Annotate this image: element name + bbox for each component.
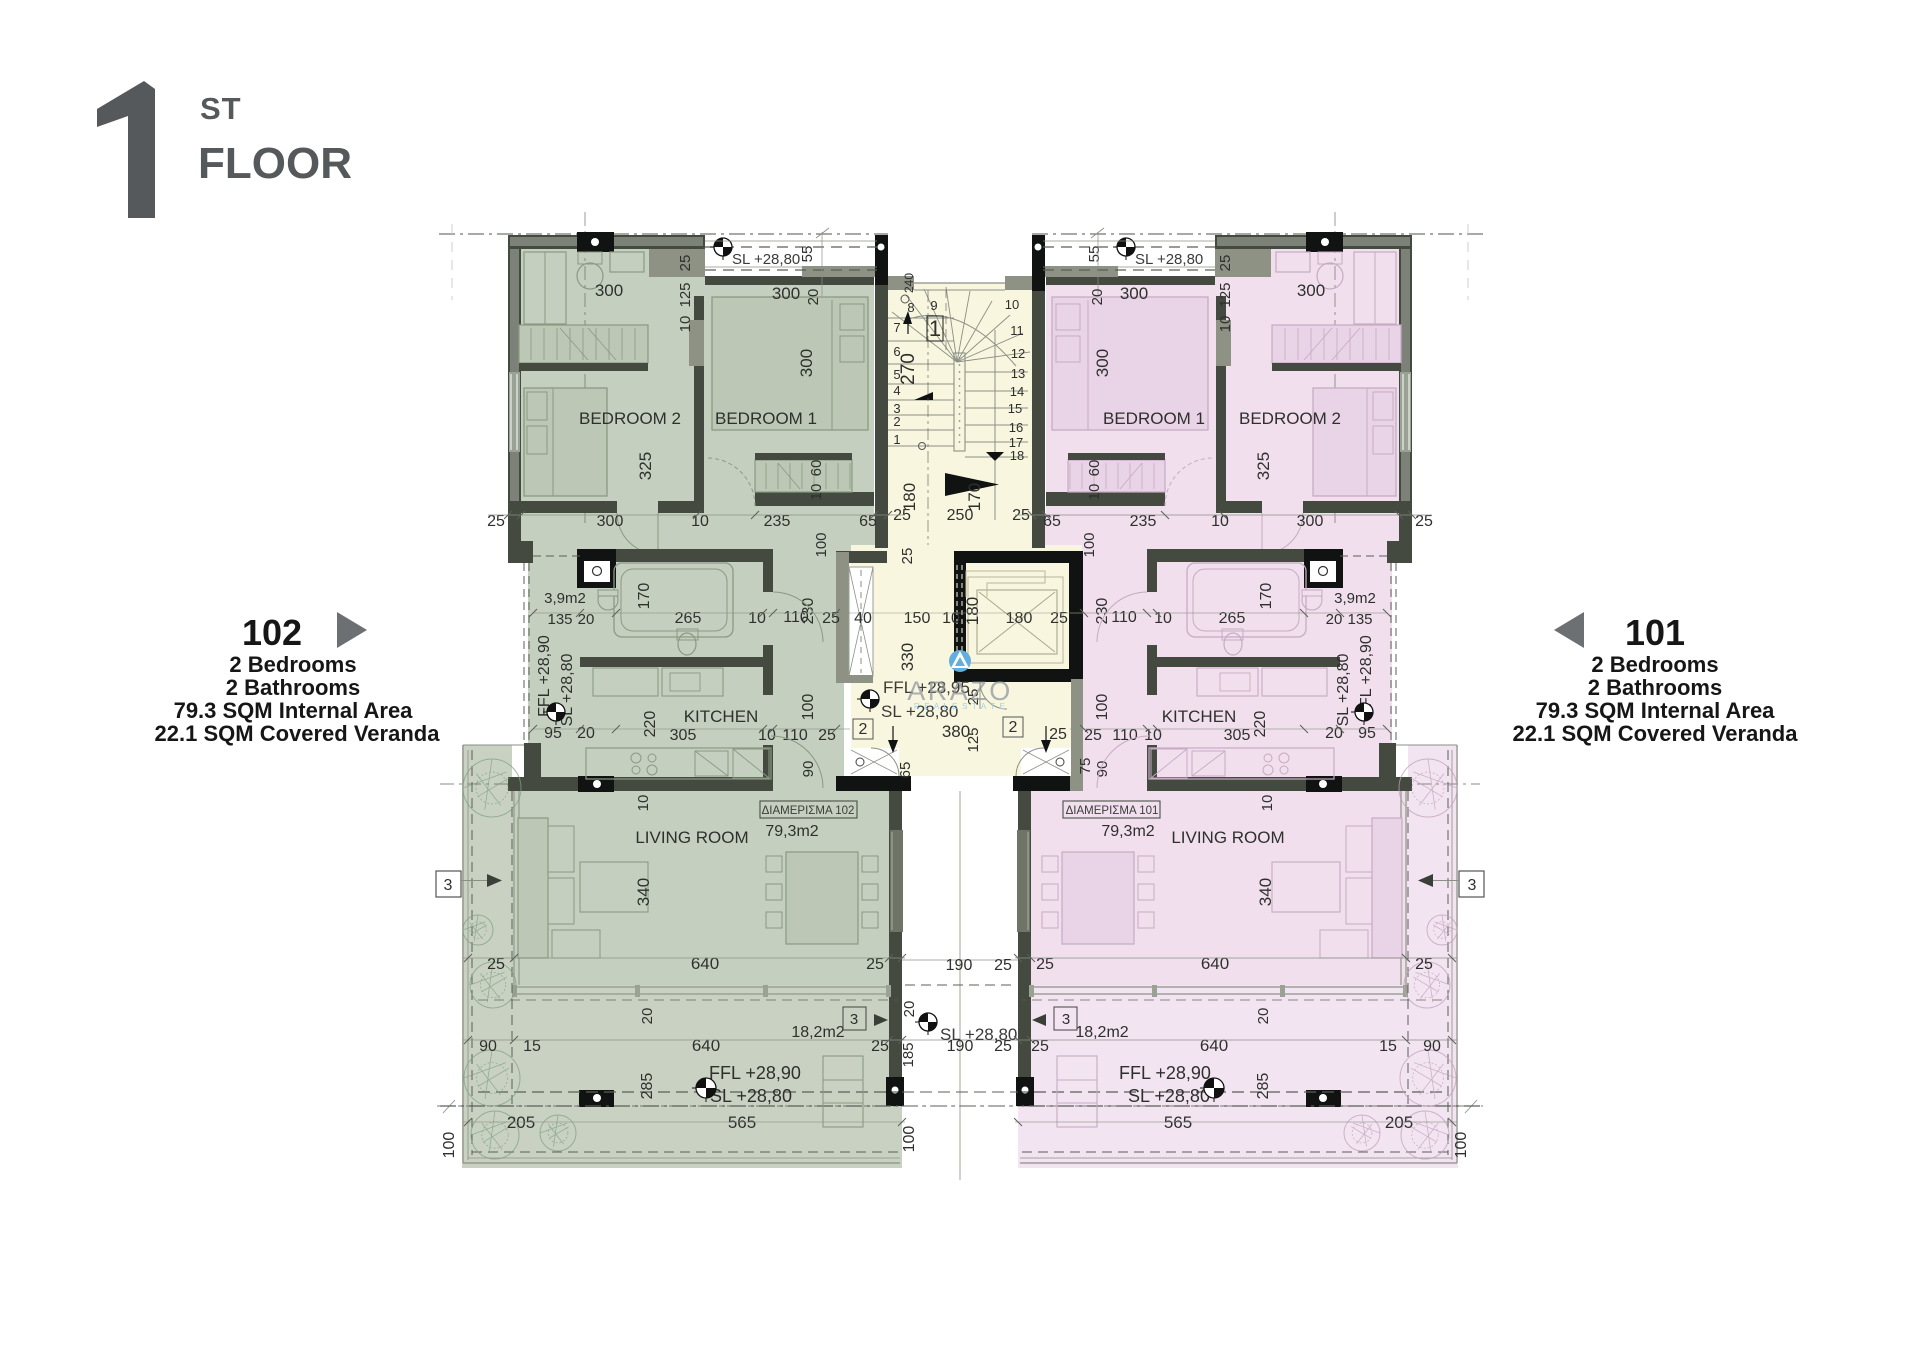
svg-text:18: 18: [1010, 448, 1024, 463]
svg-text:BEDROOM 1: BEDROOM 1: [1103, 409, 1205, 428]
svg-text:ΔΙΑΜΕΡΙΣΜΑ 102: ΔΙΑΜΕΡΙΣΜΑ 102: [762, 805, 855, 817]
svg-text:10: 10: [1217, 316, 1234, 333]
svg-text:95: 95: [1358, 725, 1376, 742]
svg-text:565: 565: [728, 1113, 756, 1132]
svg-text:305: 305: [670, 727, 697, 744]
svg-text:100: 100: [441, 1132, 458, 1159]
svg-text:65: 65: [859, 513, 877, 530]
svg-text:125: 125: [965, 727, 982, 752]
svg-text:SL +28,80: SL +28,80: [1128, 1086, 1210, 1106]
svg-text:170: 170: [965, 483, 984, 511]
svg-text:ΔΙΑΜΕΡΙΣΜΑ 101: ΔΙΑΜΕΡΙΣΜΑ 101: [1066, 805, 1159, 817]
svg-text:230: 230: [1094, 598, 1111, 625]
svg-text:18,2m2: 18,2m2: [791, 1024, 844, 1041]
svg-text:10: 10: [1005, 297, 1019, 312]
svg-text:300: 300: [772, 284, 800, 303]
svg-text:25: 25: [871, 1038, 889, 1055]
svg-text:79,3m2: 79,3m2: [1101, 823, 1154, 840]
svg-text:25: 25: [1084, 727, 1102, 744]
svg-text:25: 25: [487, 956, 505, 973]
svg-text:270: 270: [898, 353, 919, 385]
svg-text:265: 265: [675, 610, 702, 627]
svg-text:18,2m2: 18,2m2: [1075, 1024, 1128, 1041]
svg-text:25: 25: [1217, 255, 1234, 272]
svg-text:640: 640: [1200, 1036, 1228, 1055]
svg-text:25: 25: [818, 727, 836, 744]
svg-text:220: 220: [1252, 711, 1269, 738]
svg-text:10: 10: [758, 727, 776, 744]
svg-text:55: 55: [799, 246, 816, 263]
svg-text:2: 2: [859, 721, 868, 738]
svg-text:90: 90: [1094, 761, 1111, 778]
svg-text:22.1 SQM Covered Veranda: 22.1 SQM Covered Veranda: [1513, 721, 1799, 746]
svg-text:100: 100: [800, 694, 817, 721]
svg-text:95: 95: [544, 725, 562, 742]
svg-text:3: 3: [850, 1011, 858, 1028]
svg-text:22.1 SQM Covered Veranda: 22.1 SQM Covered Veranda: [155, 721, 441, 746]
svg-text:10: 10: [691, 513, 709, 530]
svg-text:25: 25: [1012, 507, 1030, 524]
svg-text:170: 170: [636, 583, 653, 610]
svg-text:170: 170: [1258, 583, 1275, 610]
svg-text:R E A L E S T A T E: R E A L E S T A T E: [914, 702, 1006, 711]
svg-text:135: 135: [547, 611, 572, 628]
svg-text:285: 285: [639, 1073, 656, 1100]
svg-text:LIVING ROOM: LIVING ROOM: [1171, 828, 1284, 847]
svg-text:180: 180: [963, 597, 982, 625]
svg-text:235: 235: [1130, 513, 1157, 530]
svg-text:340: 340: [634, 878, 653, 906]
svg-text:100: 100: [1081, 532, 1098, 557]
svg-text:75: 75: [1077, 758, 1094, 775]
svg-text:25: 25: [1415, 956, 1433, 973]
svg-text:565: 565: [1164, 1113, 1192, 1132]
svg-text:20: 20: [805, 289, 822, 306]
svg-text:1: 1: [929, 316, 941, 341]
svg-text:20: 20: [901, 1001, 918, 1018]
svg-text:25: 25: [1050, 610, 1068, 627]
svg-text:3: 3: [1062, 1011, 1070, 1028]
svg-text:10: 10: [677, 316, 694, 333]
svg-text:90: 90: [479, 1038, 497, 1055]
svg-text:325: 325: [1254, 452, 1273, 480]
svg-text:11: 11: [1010, 323, 1024, 338]
svg-text:12: 12: [1011, 346, 1025, 361]
svg-text:25: 25: [487, 513, 505, 530]
svg-text:25: 25: [994, 957, 1012, 974]
svg-text:135: 135: [1347, 611, 1372, 628]
svg-text:14: 14: [1010, 384, 1024, 399]
svg-text:205: 205: [1385, 1113, 1413, 1132]
svg-text:25: 25: [1415, 513, 1433, 530]
svg-text:325: 325: [636, 452, 655, 480]
svg-text:SL +28,80: SL +28,80: [940, 1025, 1017, 1044]
svg-text:20: 20: [1325, 725, 1343, 742]
svg-text:20: 20: [1255, 1008, 1272, 1025]
svg-text:101: 101: [1625, 612, 1685, 653]
svg-text:BEDROOM 1: BEDROOM 1: [715, 409, 817, 428]
svg-text:3: 3: [444, 877, 453, 894]
svg-text:15: 15: [1379, 1038, 1397, 1055]
svg-text:100: 100: [1453, 1132, 1470, 1159]
svg-text:SL +28,80: SL +28,80: [732, 251, 800, 268]
svg-text:10: 10: [1211, 513, 1229, 530]
svg-text:15: 15: [1008, 401, 1022, 416]
svg-text:205: 205: [507, 1113, 535, 1132]
svg-text:FFL +28,90: FFL +28,90: [709, 1063, 801, 1083]
svg-text:640: 640: [692, 1036, 720, 1055]
svg-text:65: 65: [1043, 513, 1061, 530]
svg-text:79.3 SQM Internal Area: 79.3 SQM Internal Area: [1536, 698, 1776, 723]
svg-text:SL +28,80: SL +28,80: [1135, 251, 1203, 268]
svg-text:25: 25: [1049, 726, 1067, 743]
svg-text:100: 100: [1094, 694, 1111, 721]
svg-text:190: 190: [946, 957, 973, 974]
svg-text:10: 10: [1086, 484, 1103, 501]
svg-text:3: 3: [1468, 877, 1477, 894]
svg-text:100: 100: [813, 532, 830, 557]
svg-text:2 Bathrooms: 2 Bathrooms: [1588, 675, 1722, 700]
svg-text:ST: ST: [200, 91, 242, 126]
svg-text:300: 300: [1297, 281, 1325, 300]
svg-text:25: 25: [822, 610, 840, 627]
svg-text:90: 90: [800, 761, 817, 778]
svg-text:640: 640: [691, 954, 719, 973]
svg-text:125: 125: [677, 282, 694, 307]
svg-text:40: 40: [854, 610, 872, 627]
svg-text:235: 235: [764, 513, 791, 530]
svg-text:SL +28,80: SL +28,80: [1335, 654, 1352, 727]
svg-text:300: 300: [1093, 349, 1112, 377]
svg-text:SL +28,80: SL +28,80: [710, 1086, 792, 1106]
svg-text:2 Bedrooms: 2 Bedrooms: [229, 652, 356, 677]
svg-text:10: 10: [1259, 795, 1276, 812]
svg-text:65: 65: [897, 762, 914, 779]
svg-text:300: 300: [597, 513, 624, 530]
svg-text:185: 185: [900, 1042, 917, 1067]
svg-text:20: 20: [578, 611, 595, 628]
svg-text:110: 110: [1111, 609, 1137, 626]
svg-text:340: 340: [1256, 878, 1275, 906]
svg-text:2: 2: [1009, 719, 1018, 736]
svg-text:BEDROOM 2: BEDROOM 2: [579, 409, 681, 428]
svg-text:10: 10: [1144, 727, 1162, 744]
svg-text:102: 102: [242, 612, 302, 653]
svg-text:KITCHEN: KITCHEN: [684, 707, 759, 726]
svg-text:2: 2: [893, 414, 900, 429]
svg-text:300: 300: [1297, 513, 1324, 530]
svg-text:20: 20: [577, 725, 595, 742]
svg-text:16: 16: [1009, 420, 1023, 435]
svg-text:300: 300: [595, 281, 623, 300]
svg-text:25: 25: [1031, 1038, 1049, 1055]
svg-text:25: 25: [899, 548, 916, 565]
svg-text:265: 265: [1219, 610, 1246, 627]
svg-text:FLOOR: FLOOR: [198, 139, 352, 188]
svg-text:10: 10: [942, 610, 960, 627]
svg-text:240: 240: [902, 273, 916, 293]
svg-text:7: 7: [893, 320, 900, 335]
svg-text:25: 25: [866, 956, 884, 973]
svg-text:79.3 SQM Internal Area: 79.3 SQM Internal Area: [174, 698, 414, 723]
svg-text:10: 10: [635, 795, 652, 812]
svg-text:20: 20: [639, 1008, 656, 1025]
svg-text:20: 20: [1326, 611, 1343, 628]
svg-text:180: 180: [1006, 610, 1033, 627]
svg-text:1: 1: [893, 432, 900, 447]
svg-text:3,9m2: 3,9m2: [544, 590, 586, 607]
svg-text:2 Bathrooms: 2 Bathrooms: [226, 675, 360, 700]
svg-text:BEDROOM 2: BEDROOM 2: [1239, 409, 1341, 428]
svg-text:60: 60: [808, 460, 825, 477]
svg-text:8: 8: [907, 300, 914, 315]
svg-text:640: 640: [1201, 954, 1229, 973]
svg-text:300: 300: [797, 349, 816, 377]
svg-text:FFL +28,90: FFL +28,90: [1119, 1063, 1211, 1083]
svg-text:10: 10: [808, 484, 825, 501]
svg-text:330: 330: [898, 643, 917, 671]
svg-text:20: 20: [1089, 289, 1106, 306]
svg-text:2 Bedrooms: 2 Bedrooms: [1591, 652, 1718, 677]
svg-text:13: 13: [1011, 366, 1025, 381]
svg-text:25: 25: [1036, 956, 1054, 973]
svg-text:300: 300: [1120, 284, 1148, 303]
svg-text:3,9m2: 3,9m2: [1334, 590, 1376, 607]
svg-text:LIVING ROOM: LIVING ROOM: [635, 828, 748, 847]
svg-text:55: 55: [1086, 246, 1103, 263]
svg-text:220: 220: [642, 711, 659, 738]
svg-text:150: 150: [904, 610, 931, 627]
svg-text:79,3m2: 79,3m2: [765, 823, 818, 840]
svg-text:100: 100: [901, 1126, 918, 1153]
svg-text:25: 25: [677, 255, 694, 272]
svg-text:15: 15: [523, 1038, 541, 1055]
svg-text:305: 305: [1224, 727, 1251, 744]
svg-text:180: 180: [900, 483, 919, 511]
svg-text:60: 60: [1086, 460, 1103, 477]
svg-text:125: 125: [1217, 282, 1234, 307]
svg-text:9: 9: [930, 298, 937, 313]
svg-text:285: 285: [1255, 1073, 1272, 1100]
svg-text:KITCHEN: KITCHEN: [1162, 707, 1237, 726]
svg-text:90: 90: [1423, 1038, 1441, 1055]
